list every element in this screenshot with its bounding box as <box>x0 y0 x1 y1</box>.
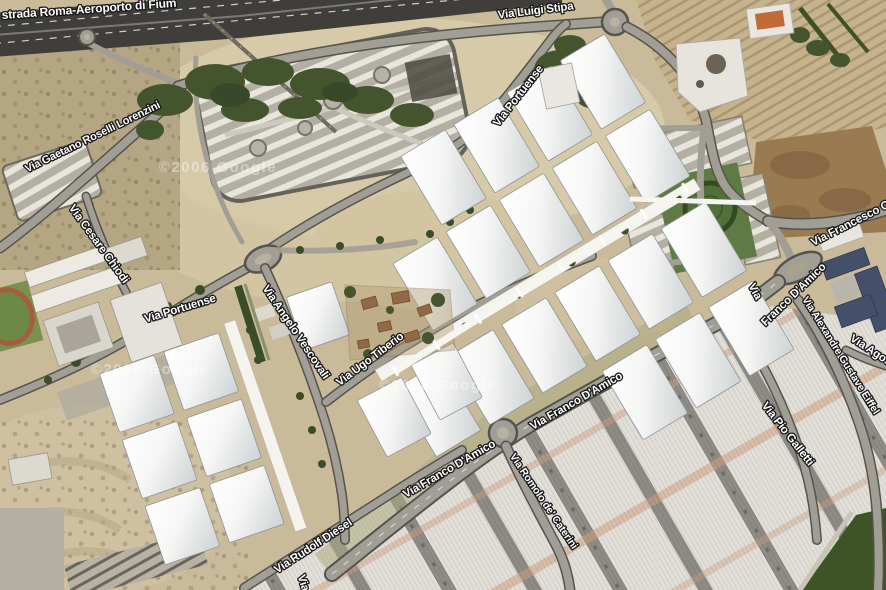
watermark-1: ©2006 Google <box>159 159 277 176</box>
satellite-map-viewport[interactable]: ©2006 Google©2006 Google©2006 Google str… <box>0 0 886 590</box>
villa <box>746 3 794 39</box>
watermark-2: ©2006 Google <box>379 377 497 394</box>
satellite-map-canvas[interactable]: ©2006 Google©2006 Google©2006 Google str… <box>0 0 886 590</box>
gray-lot <box>0 508 64 590</box>
watermark-0: ©2006 Google <box>91 361 209 378</box>
